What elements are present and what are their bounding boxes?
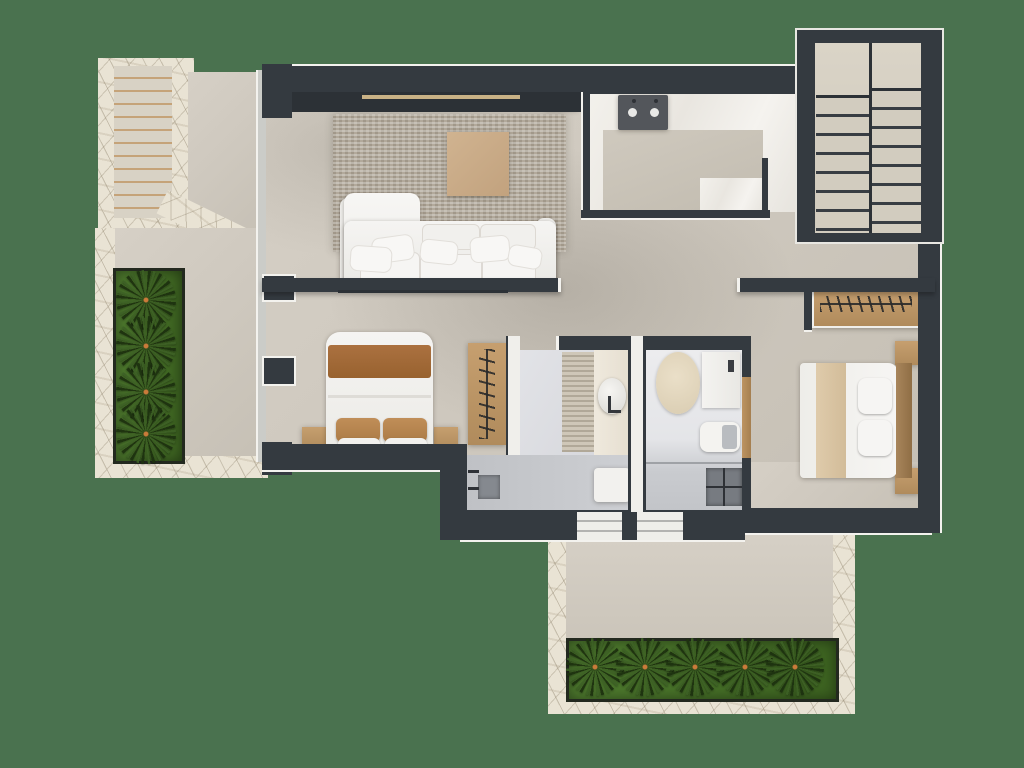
wall-lip: [338, 290, 508, 293]
back-terrace: [566, 532, 833, 640]
faucet-arm: [608, 410, 621, 413]
palm-plant: [116, 404, 176, 464]
cooktop-burner: [628, 108, 637, 117]
bath-mat-oval: [656, 352, 700, 414]
wall-closet-stub: [804, 278, 812, 332]
wall-ensuite-north: [637, 336, 742, 350]
ensuite-vanity: [702, 352, 740, 408]
wall-bath-north: [556, 336, 637, 350]
beam-light-strip: [362, 95, 520, 99]
bath-runner-rug: [562, 352, 594, 452]
cooktop-knob: [654, 99, 658, 103]
wall-pier: [262, 356, 296, 386]
sofa-pillow: [469, 234, 511, 263]
sofa-pillow: [349, 245, 393, 274]
shower-drain-line: [723, 468, 725, 506]
bed-left-duvet-fold: [328, 395, 431, 398]
wardrobe-left-hangers: [479, 349, 495, 439]
toilet-lid: [722, 425, 737, 449]
terrace-door-threshold: [637, 512, 683, 540]
vessel-sink: [598, 378, 626, 414]
terrace-door-threshold: [577, 512, 622, 540]
wall-north: [263, 64, 800, 94]
glass-wall-west: [256, 70, 266, 462]
bed-right-runner: [816, 363, 846, 478]
wall-bedroom-bath: [506, 336, 520, 455]
wall-south-east: [745, 508, 932, 535]
stair-flight-right: [872, 91, 921, 233]
wall-kitchen-nook: [762, 158, 768, 218]
shower-arm: [468, 470, 479, 473]
wall-south-west: [262, 444, 460, 472]
shower-tray: [478, 475, 500, 499]
ensuite-door-wood: [742, 377, 751, 458]
palm-plant: [766, 638, 824, 696]
cooktop-knob: [632, 99, 636, 103]
nightstand: [895, 341, 919, 365]
bed-right-headboard: [896, 363, 912, 478]
wall-bath-divider: [628, 336, 646, 512]
floor-plan-scene: [0, 0, 1024, 768]
bed-right-pillow: [858, 378, 892, 414]
wall-pier: [262, 64, 292, 118]
ottoman: [447, 132, 509, 196]
ensuite-tap: [728, 360, 734, 372]
bed-left-throw-blanket: [328, 345, 431, 378]
cooktop-burner: [650, 108, 659, 117]
wardrobe-right-hangers: [820, 296, 912, 312]
shower-glass-screen: [640, 462, 742, 464]
wall-hall-north-right: [737, 278, 935, 292]
stair-flight-left: [816, 98, 869, 233]
shower-bench: [594, 468, 630, 502]
shower-arm: [468, 487, 479, 490]
bed-right-pillow: [858, 420, 892, 456]
sofa-pillow: [419, 238, 459, 266]
cooktop: [618, 95, 668, 130]
kitchen-floor-notch: [700, 178, 763, 212]
wall-kitchen-south: [581, 210, 770, 220]
entry-staircase: [114, 66, 172, 218]
wall-kitchen-west: [581, 92, 590, 215]
